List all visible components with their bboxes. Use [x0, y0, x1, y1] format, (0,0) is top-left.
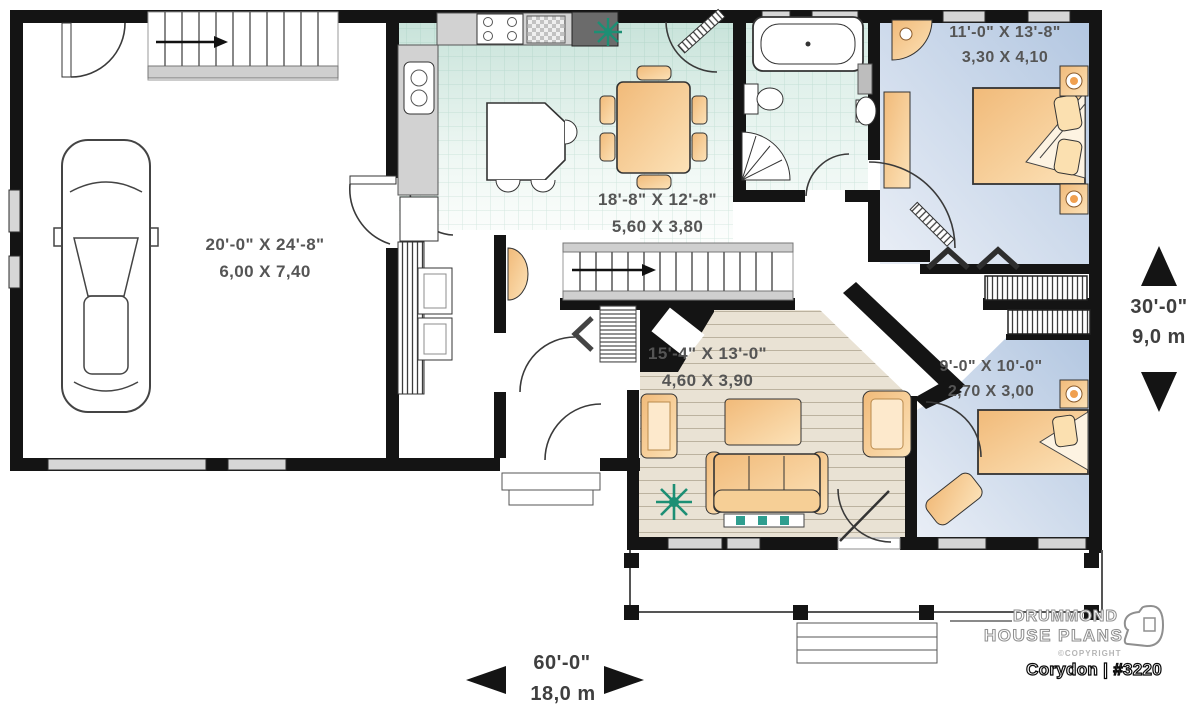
room-label-bedroom-2: 9'-0" X 10'-0" 2,70 X 3,00	[902, 354, 1080, 404]
toilet-icon	[744, 84, 758, 114]
decor-item	[736, 516, 745, 525]
nightstand-icon	[1060, 184, 1088, 214]
decor-item	[758, 516, 767, 525]
pillow-icon	[1053, 138, 1083, 176]
window	[1038, 538, 1086, 549]
dining-table-icon	[617, 82, 690, 173]
garage	[54, 12, 399, 412]
chair-icon	[692, 96, 707, 124]
room-label-living-room: 15'-4" X 13'-0" 4,60 X 3,90	[600, 340, 815, 394]
step	[797, 623, 937, 637]
porch-column	[624, 553, 639, 568]
wall-foyer-west-b	[494, 392, 506, 458]
wall-mudroom-front-a	[398, 458, 500, 471]
floorplan-page: 20'-0" X 24'-8" 6,00 X 7,40 18'-8" X 12'…	[0, 0, 1200, 711]
brand-name-line2: HOUSE PLANS	[984, 626, 1123, 646]
wall-living-west	[627, 390, 639, 550]
room-dim-imperial: 20'-0" X 24'-8"	[155, 231, 375, 258]
door-arc	[71, 23, 125, 77]
linen-cabinet	[858, 64, 872, 94]
garage-door	[48, 459, 206, 470]
coffee-table-icon	[725, 399, 801, 445]
overall-depth-imperial: 30'-0"	[1116, 296, 1200, 319]
room-dim-metric: 4,60 X 3,90	[600, 367, 815, 394]
chair-icon	[600, 133, 615, 161]
direction-left-triangle-icon	[466, 666, 506, 694]
window	[9, 190, 20, 232]
brand-name-line1: DRUMMOND	[1013, 608, 1118, 626]
step	[509, 490, 593, 505]
garage-stairs-icon	[148, 12, 338, 80]
room-label-garage: 20'-0" X 24'-8" 6,00 X 7,40	[155, 231, 375, 285]
overall-width-imperial: 60'-0"	[512, 652, 612, 675]
wall-foyer-west-a	[494, 235, 506, 333]
room-dim-metric: 2,70 X 3,00	[902, 379, 1080, 404]
room-dim-metric: 5,60 X 3,80	[545, 213, 770, 240]
pillow-icon	[1053, 94, 1083, 132]
chair-icon	[600, 96, 615, 124]
nightstand-icon	[1060, 66, 1088, 96]
side-entry-steps	[502, 473, 600, 505]
wall-garage-right-a	[386, 10, 399, 180]
copyright-label: ©COPYRIGHT	[1058, 649, 1128, 658]
plan-name-label: Corydon | #3220	[1000, 660, 1162, 680]
direction-down-triangle-icon	[1141, 372, 1177, 412]
room-dim-metric: 6,00 X 7,40	[155, 258, 375, 285]
room-dim-metric: 3,30 X 4,10	[915, 45, 1095, 70]
direction-up-triangle-icon	[1141, 246, 1177, 286]
porch-column	[624, 605, 639, 620]
porch-column	[919, 605, 934, 620]
pedestal-sink-icon	[856, 97, 876, 125]
room-label-kitchen-dining: 18'-8" X 12'-8" 5,60 X 3,80	[545, 186, 770, 240]
porch-column	[793, 605, 808, 620]
room-dim-imperial: 11'-0" X 13'-8"	[915, 20, 1095, 45]
drummond-d-logo-icon	[1120, 604, 1164, 652]
step	[797, 650, 937, 663]
step	[797, 637, 937, 650]
window	[228, 459, 286, 470]
room-dim-imperial: 15'-4" X 13'-0"	[600, 340, 815, 367]
wall-closet-north	[920, 264, 1092, 274]
wall-garage-right-b	[386, 248, 399, 471]
closet-rod-icon	[985, 276, 1087, 300]
sofa-icon	[706, 452, 828, 514]
window	[668, 538, 722, 549]
step	[502, 473, 600, 490]
window	[727, 538, 760, 549]
decor-item	[780, 516, 789, 525]
wall-left	[10, 10, 23, 471]
porch-edge	[630, 550, 1102, 612]
closet-rod-icon	[1008, 310, 1090, 334]
houseplant-icon	[594, 18, 622, 46]
room-label-bedroom-1: 11'-0" X 13'-8" 3,30 X 4,10	[915, 20, 1095, 70]
pillow-icon	[1052, 415, 1078, 448]
stove-icon	[477, 14, 523, 44]
washer-icon	[418, 268, 452, 314]
wall-closet-south	[1006, 334, 1092, 340]
overall-depth-metric: 9,0 m	[1116, 326, 1200, 349]
logo-rule	[950, 620, 1012, 622]
wall-bedroom1-south	[868, 250, 930, 262]
fridge-icon	[400, 197, 438, 241]
wall-bedroom1-west	[868, 196, 880, 254]
dresser-icon	[884, 92, 910, 188]
window	[9, 256, 20, 288]
overall-width-metric: 18,0 m	[510, 683, 616, 706]
chair-icon	[692, 133, 707, 161]
room-dim-imperial: 9'-0" X 10'-0"	[902, 354, 1080, 379]
room-dim-imperial: 18'-8" X 12'-8"	[545, 186, 770, 213]
porch-column	[1084, 553, 1099, 568]
houseplant-icon	[656, 484, 692, 520]
porch-steps	[797, 623, 937, 663]
kitchen-sink-icon	[527, 16, 565, 43]
car-icon	[54, 140, 158, 412]
garage-entry-door	[62, 23, 125, 77]
chair-icon	[637, 66, 671, 80]
window	[938, 538, 986, 549]
wall-right	[1089, 10, 1102, 553]
front-door-threshold	[838, 538, 900, 549]
